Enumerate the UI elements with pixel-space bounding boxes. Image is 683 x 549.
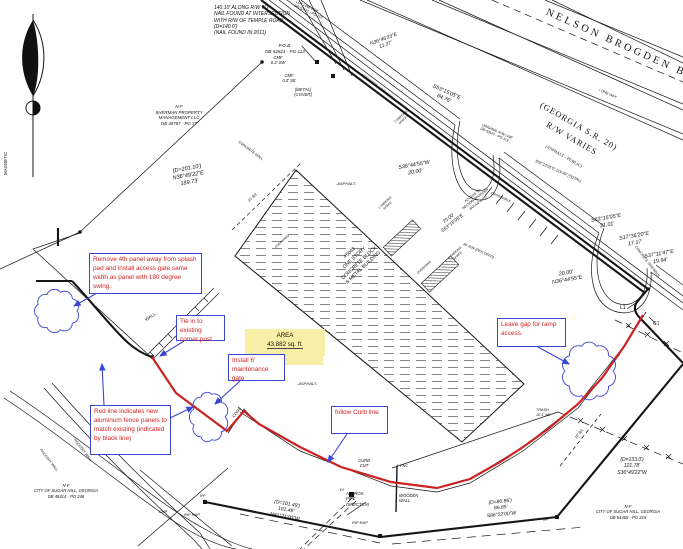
leader-arrow <box>328 434 347 462</box>
revision-clouds <box>34 289 615 441</box>
leader-arrow <box>102 364 104 405</box>
markup-overlay <box>0 0 683 549</box>
leader-arrow <box>160 341 184 356</box>
survey-plat-drawing: AREA 43,882 sq. ft. 140.10' ALONG R/W TO… <box>0 0 683 549</box>
new-fence-red-line <box>152 315 643 488</box>
leader-arrow <box>74 293 97 306</box>
revision-cloud <box>34 289 78 332</box>
leader-arrow <box>538 347 569 364</box>
markup-arrows <box>74 293 569 462</box>
leader-arrow <box>215 381 240 404</box>
